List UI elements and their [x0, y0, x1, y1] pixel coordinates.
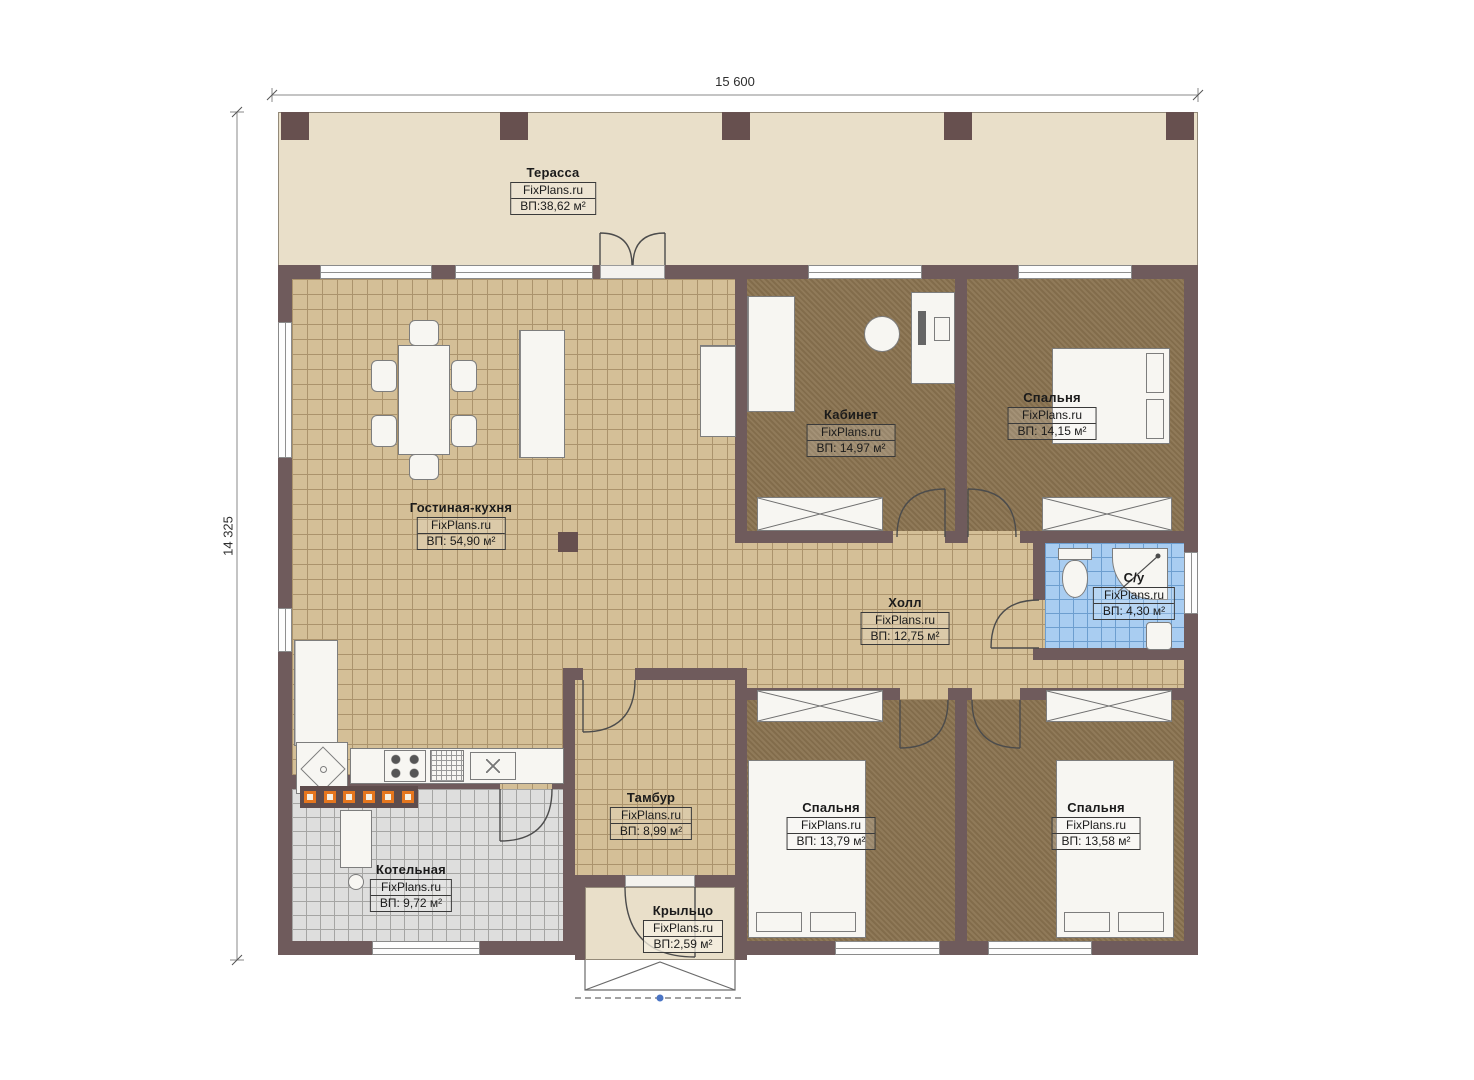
- pillow: [1146, 353, 1164, 393]
- dining-chair: [409, 454, 439, 480]
- wardrobe-cross-icon: [1047, 691, 1171, 721]
- room-brand: FixPlans.ru: [511, 183, 595, 199]
- step-center-marker: [657, 995, 664, 1002]
- dining-chair: [409, 320, 439, 346]
- window: [455, 265, 593, 279]
- toilet-bowl: [1062, 560, 1088, 598]
- window: [372, 941, 480, 955]
- keyboard: [934, 317, 950, 341]
- window: [278, 608, 292, 652]
- room-label-boiler: Котельная FixPlans.ru ВП: 9,72 м²: [370, 862, 452, 912]
- terrace-door-opening: [600, 265, 665, 279]
- window: [988, 941, 1092, 955]
- dimension-height: 14 325: [221, 516, 236, 556]
- room-info-box: FixPlans.ru ВП: 13,79 м²: [787, 817, 876, 850]
- terrace-column: [281, 112, 309, 140]
- heater-cell: [324, 791, 336, 803]
- room-label-porch: Крыльцо FixPlans.ru ВП:2,59 м²: [643, 903, 723, 953]
- room-brand: FixPlans.ru: [644, 921, 722, 937]
- room-brand: FixPlans.ru: [611, 808, 691, 824]
- heater-strip: [300, 786, 418, 808]
- wall-vestibule-top-a: [563, 668, 583, 680]
- boiler-unit: [340, 810, 372, 868]
- cabinet: [700, 345, 736, 437]
- room-info-box: FixPlans.ru ВП: 8,99 м²: [610, 807, 692, 840]
- room-name: С/у: [1093, 570, 1175, 585]
- room-info-box: FixPlans.ru ВП: 54,90 м²: [417, 517, 506, 550]
- room-label-hall: Холл FixPlans.ru ВП: 12,75 м²: [861, 595, 950, 645]
- dining-chair: [451, 415, 477, 447]
- window: [808, 265, 922, 279]
- wall-bedroom2-bedroom3: [955, 688, 967, 941]
- room-name: Котельная: [370, 862, 452, 877]
- room-label-bedroom2: Спальня FixPlans.ru ВП: 13,79 м²: [787, 800, 876, 850]
- kitchen-counter-tall: [294, 640, 338, 746]
- porch-steps: [575, 960, 745, 1002]
- room-info-box: FixPlans.ru ВП: 4,30 м²: [1093, 587, 1175, 620]
- room-label-bathroom: С/у FixPlans.ru ВП: 4,30 м²: [1093, 570, 1175, 620]
- heater-cell: [402, 791, 414, 803]
- room-area: ВП:38,62 м²: [511, 199, 595, 214]
- dining-chair: [451, 360, 477, 392]
- wall-office-hall-b: [945, 531, 968, 543]
- room-name: Спальня: [1052, 800, 1141, 815]
- wall-bottom-right: [747, 941, 1198, 955]
- wall-bedroom1-hall: [1020, 531, 1184, 543]
- room-name: Холл: [861, 595, 950, 610]
- terrace-column: [944, 112, 972, 140]
- sink-drain: [320, 766, 327, 773]
- desk: [911, 292, 955, 384]
- room-name: Спальня: [1008, 390, 1097, 405]
- room-info-box: FixPlans.ru ВП: 14,15 м²: [1008, 407, 1097, 440]
- room-name: Спальня: [787, 800, 876, 815]
- room-brand: FixPlans.ru: [862, 613, 949, 629]
- floor-plan-canvas: 15 600 14 325 Терасса FixPlans.ru ВП:38,…: [0, 0, 1474, 1080]
- room-info-box: FixPlans.ru ВП:2,59 м²: [643, 920, 723, 953]
- wall-office-hall-a: [735, 531, 893, 543]
- wall-living-office: [735, 265, 747, 543]
- pillow: [1118, 912, 1164, 932]
- heater-cell: [343, 791, 355, 803]
- wall-vestibule-porch-b: [695, 875, 747, 887]
- room-brand: FixPlans.ru: [788, 818, 875, 834]
- room-label-bedroom1: Спальня FixPlans.ru ВП: 14,15 м²: [1008, 390, 1097, 440]
- room-area: ВП: 4,30 м²: [1094, 604, 1174, 619]
- room-info-box: FixPlans.ru ВП: 14,97 м²: [807, 424, 896, 457]
- room-area: ВП: 8,99 м²: [611, 824, 691, 839]
- wardrobe: [1046, 690, 1172, 722]
- dining-chair: [371, 415, 397, 447]
- room-area: ВП:2,59 м²: [644, 937, 722, 952]
- window: [320, 265, 432, 279]
- terrace-column: [722, 112, 750, 140]
- entrance-door-opening: [625, 875, 695, 887]
- room-name: Терасса: [510, 165, 596, 180]
- wall-vestibule-top-b: [635, 668, 747, 680]
- room-area: ВП: 14,97 м²: [808, 441, 895, 456]
- window: [1184, 552, 1198, 614]
- wall-porch-left: [575, 887, 585, 960]
- wardrobe: [757, 690, 883, 722]
- room-name: Тамбур: [610, 790, 692, 805]
- sofa: [519, 330, 565, 458]
- terrace-column: [1166, 112, 1194, 140]
- terrace-column: [500, 112, 528, 140]
- room-name: Кабинет: [807, 407, 896, 422]
- boiler-drain: [348, 874, 364, 890]
- kitchen-sink-unit: [470, 752, 516, 780]
- heater-cell: [363, 791, 375, 803]
- wall-vestibule-porch-a: [563, 875, 625, 887]
- office-sofa: [747, 296, 795, 412]
- pillow: [1064, 912, 1110, 932]
- dimension-width: 15 600: [715, 74, 755, 89]
- room-info-box: FixPlans.ru ВП: 13,58 м²: [1052, 817, 1141, 850]
- room-brand: FixPlans.ru: [1053, 818, 1140, 834]
- window: [1018, 265, 1132, 279]
- dining-table: [398, 345, 450, 455]
- window: [835, 941, 940, 955]
- room-label-bedroom3: Спальня FixPlans.ru ВП: 13,58 м²: [1052, 800, 1141, 850]
- heater-cell: [304, 791, 316, 803]
- room-label-living: Гостиная-кухня FixPlans.ru ВП: 54,90 м²: [410, 500, 512, 550]
- wall-vestibule-left: [563, 668, 575, 955]
- monitor: [918, 311, 926, 345]
- wardrobe-cross-icon: [758, 691, 882, 721]
- pillow: [1146, 399, 1164, 439]
- wardrobe: [757, 497, 883, 531]
- room-brand: FixPlans.ru: [418, 518, 505, 534]
- room-brand: FixPlans.ru: [808, 425, 895, 441]
- wardrobe: [1042, 497, 1172, 531]
- room-area: ВП: 54,90 м²: [418, 534, 505, 549]
- window: [278, 322, 292, 458]
- wardrobe-cross-icon: [1043, 498, 1171, 530]
- oven-appliance: [430, 750, 464, 782]
- room-name: Крыльцо: [643, 903, 723, 918]
- toilet-tank: [1058, 548, 1092, 560]
- pillow: [810, 912, 856, 932]
- wardrobe-cross-icon: [758, 498, 882, 530]
- room-info-box: FixPlans.ru ВП:38,62 м²: [510, 182, 596, 215]
- room-area: ВП: 9,72 м²: [371, 896, 451, 911]
- room-label-office: Кабинет FixPlans.ru ВП: 14,97 м²: [807, 407, 896, 457]
- flue-column: [558, 532, 578, 552]
- office-chair: [864, 316, 900, 352]
- room-brand: FixPlans.ru: [1009, 408, 1096, 424]
- room-label-vestibule: Тамбур FixPlans.ru ВП: 8,99 м²: [610, 790, 692, 840]
- dining-chair: [371, 360, 397, 392]
- wall-bathroom-left-a: [1033, 543, 1045, 600]
- room-area: ВП: 14,15 м²: [1009, 424, 1096, 439]
- room-info-box: FixPlans.ru ВП: 12,75 м²: [861, 612, 950, 645]
- room-area: ВП: 13,79 м²: [788, 834, 875, 849]
- washbasin: [1146, 622, 1172, 650]
- room-area: ВП: 13,58 м²: [1053, 834, 1140, 849]
- room-brand: FixPlans.ru: [371, 880, 451, 896]
- wall-office-bedroom1: [955, 265, 967, 543]
- room-info-box: FixPlans.ru ВП: 9,72 м²: [370, 879, 452, 912]
- room-name: Гостиная-кухня: [410, 500, 512, 515]
- room-area: ВП: 12,75 м²: [862, 629, 949, 644]
- room-brand: FixPlans.ru: [1094, 588, 1174, 604]
- pillow: [756, 912, 802, 932]
- heater-cell: [382, 791, 394, 803]
- wall-porch-right: [735, 887, 747, 960]
- stove: [384, 750, 426, 782]
- room-label-terrace: Терасса FixPlans.ru ВП:38,62 м²: [510, 165, 596, 215]
